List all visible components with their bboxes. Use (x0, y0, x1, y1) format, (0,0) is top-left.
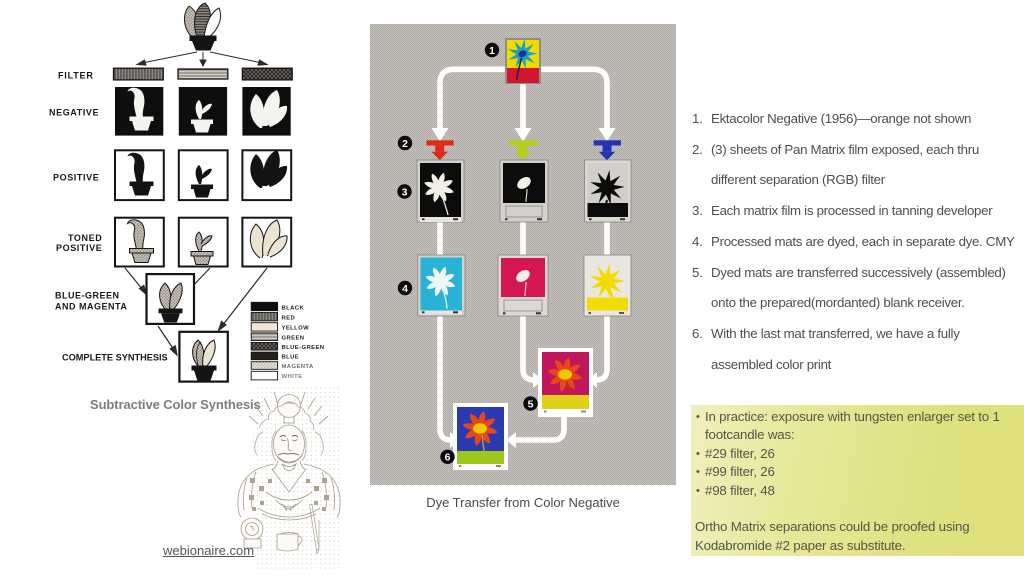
svg-text:AND MAGENTA: AND MAGENTA (55, 302, 127, 312)
svg-text:3: 3 (402, 186, 408, 198)
svg-text:BLUE: BLUE (282, 355, 300, 361)
svg-text:1: 1 (489, 45, 495, 57)
svg-text:MAGENTA: MAGENTA (282, 364, 314, 370)
svg-text:6: 6 (445, 452, 451, 464)
svg-text:COMPLETE SYNTHESIS: COMPLETE SYNTHESIS (62, 353, 168, 363)
svg-text:5: 5 (528, 398, 534, 410)
svg-text:TONED: TONED (68, 233, 102, 243)
svg-text:NEGATIVE: NEGATIVE (49, 108, 99, 118)
svg-text:POSITIVE: POSITIVE (53, 173, 99, 183)
svg-text:GREEN: GREEN (282, 335, 305, 341)
svg-text:YELLOW: YELLOW (282, 326, 310, 332)
svg-text:BLUE-GREEN: BLUE-GREEN (282, 345, 325, 351)
svg-text:BLUE-GREEN: BLUE-GREEN (55, 291, 120, 301)
svg-text:BLACK: BLACK (282, 305, 305, 311)
svg-text:WHITE: WHITE (282, 374, 303, 380)
svg-text:POSITIVE: POSITIVE (56, 243, 102, 253)
svg-text:4: 4 (402, 283, 408, 295)
svg-text:FILTER: FILTER (58, 71, 94, 81)
svg-text:2: 2 (402, 138, 408, 150)
svg-text:RED: RED (282, 316, 296, 322)
